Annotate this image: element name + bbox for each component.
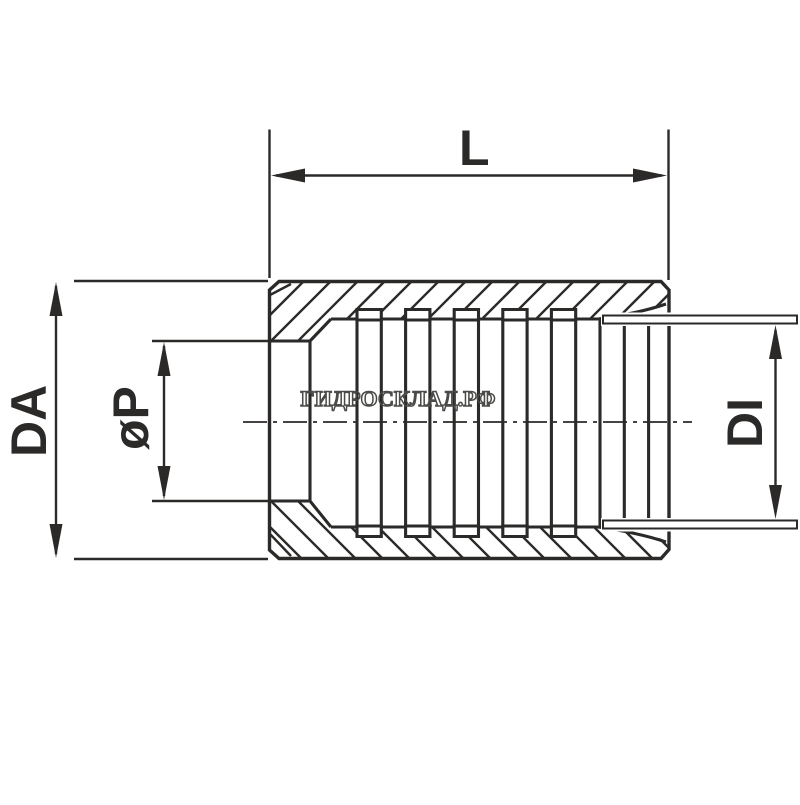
svg-text:DA: DA <box>1 385 57 457</box>
svg-text:DI: DI <box>717 398 773 448</box>
svg-text:L: L <box>459 120 490 176</box>
svg-text:ГИДРОСКЛАД.РФ: ГИДРОСКЛАД.РФ <box>301 386 496 411</box>
svg-text:øP: øP <box>103 386 159 450</box>
